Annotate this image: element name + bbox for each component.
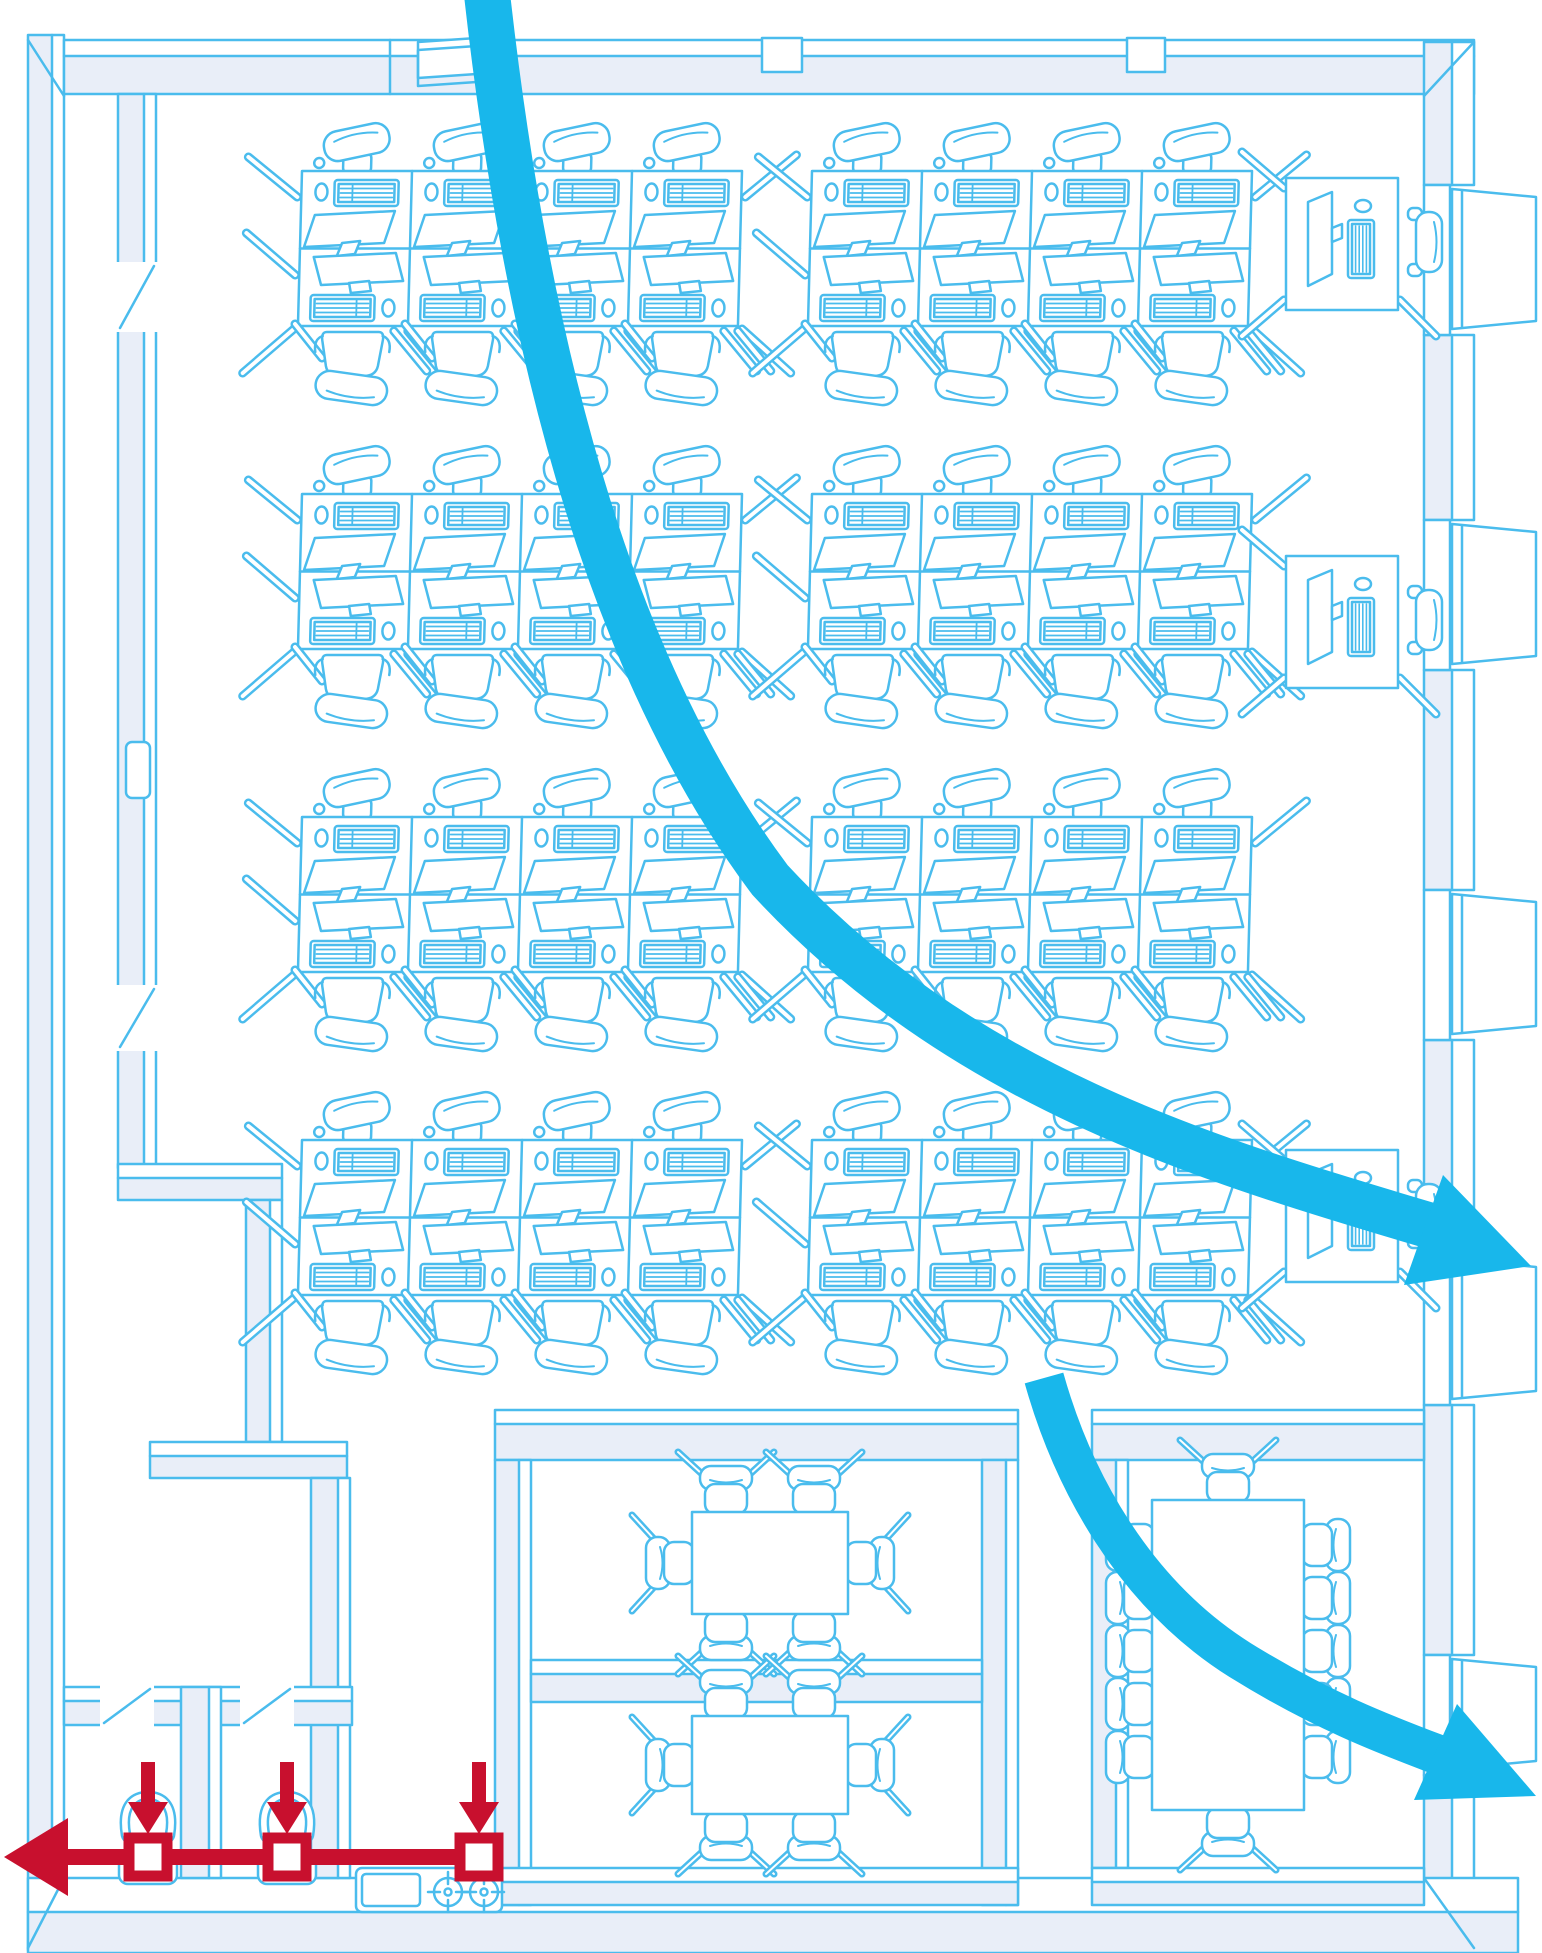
meeting-room-wall [495,1410,1018,1460]
chair-back [942,121,1012,164]
mouse [825,830,837,847]
mouse [1045,184,1057,201]
interior-walls [116,94,350,1878]
keyboard [420,618,485,644]
keyboard [640,295,705,321]
keyboard [844,826,909,852]
mouse [645,830,657,847]
office-chair [293,1293,391,1376]
down-arrow-icon [280,1762,294,1802]
mouse [535,830,547,847]
mouse [645,1153,657,1170]
keyboard [310,941,375,967]
mouse [892,623,904,640]
keyboard [1150,618,1215,644]
mouse [1002,623,1014,640]
mouse [712,946,724,963]
keyboard [444,503,509,529]
office-chair [644,1090,723,1142]
office-chair [424,444,503,496]
office-chair [1044,121,1123,173]
mouse [825,507,837,524]
keyboard [664,1149,729,1175]
mouse [382,1269,394,1286]
conference-room-wall [1092,1868,1424,1905]
chair-back [1162,444,1232,487]
chair-seat [933,1338,1009,1376]
office-chair [293,970,391,1053]
chair-back [1416,212,1442,272]
chair-seat [643,1015,719,1053]
keyboard [1174,180,1239,206]
chair-back [652,444,722,487]
office-chair [1154,767,1233,819]
chair-seat [643,369,719,407]
office-chair [644,444,723,496]
mouse [425,184,437,201]
mouse [892,946,904,963]
chair-back [832,1090,902,1133]
mouse [1222,946,1234,963]
keyboard [334,503,399,529]
chair-back [322,121,392,164]
keyboard [954,503,1019,529]
chair-seat [1043,1338,1119,1376]
mouse [935,1153,947,1170]
chair-seat [313,369,389,407]
mouse [712,1269,724,1286]
mouse [1155,507,1167,524]
keyboard [820,618,885,644]
mouse [602,1269,614,1286]
chair-back [432,1090,502,1133]
keyboard [444,1149,509,1175]
chair-seat [423,1338,499,1376]
keyboard [554,180,619,206]
office-chair [314,444,393,496]
keyboard [640,1264,705,1290]
keyboard [554,1149,619,1175]
chair-seat [933,369,1009,407]
partition-wall [118,1164,282,1200]
chair-seat [1153,369,1229,407]
chair-seat [823,1338,899,1376]
keyboard [1348,598,1374,656]
chair-back [942,767,1012,810]
keyboard [444,826,509,852]
keyboard [1150,295,1215,321]
chair-seat [823,692,899,730]
chair-seat [313,692,389,730]
chair-seat [643,1338,719,1376]
office-chair [934,1090,1013,1142]
office-chair [1408,586,1442,654]
keyboard [1040,295,1105,321]
meeting-chair [1302,1519,1350,1571]
meeting-chair [1302,1572,1350,1624]
mouse [825,1153,837,1170]
partition-wall [311,1478,350,1878]
partition-wall [150,1442,347,1478]
window-desk [1242,530,1442,714]
keyboard [930,295,995,321]
keyboard [1150,941,1215,967]
chair-back [1416,590,1442,650]
chair-back [1052,767,1122,810]
office-chair [314,121,393,173]
meeting-chair [1106,1678,1154,1730]
office-chair [803,647,901,730]
keyboard [554,826,619,852]
mouse [492,1269,504,1286]
keyboard [334,1149,399,1175]
keyboard [334,180,399,206]
meeting-room-wall [531,1660,982,1702]
mouse [1045,507,1057,524]
keyboard [1348,220,1374,278]
stall-door-opening [100,1685,154,1727]
keyboard [530,618,595,644]
meeting-chair [1302,1625,1350,1677]
office-chair [824,1090,903,1142]
chair-back [542,1090,612,1133]
office-chair [803,1293,901,1376]
chair-seat [533,692,609,730]
keyboard [640,941,705,967]
mouse [1222,300,1234,317]
desk-cluster [242,1090,797,1376]
meeting-chair [678,1452,774,1514]
keyboard [420,1264,485,1290]
office-chair [1408,208,1442,276]
chair-seat [1043,692,1119,730]
chair-seat [423,1015,499,1053]
mouse [1355,578,1371,590]
chair-back [322,767,392,810]
mouse [1112,946,1124,963]
meeting-chair [846,1515,908,1611]
meeting-chair [766,1812,862,1874]
keyboard [1064,1149,1129,1175]
chair-seat [423,369,499,407]
window-desk [1242,152,1442,336]
office-chair [314,1090,393,1142]
mouse [602,300,614,317]
mouse [825,184,837,201]
keyboard [1150,1264,1215,1290]
chair-back [652,121,722,164]
window [1424,890,1536,1040]
chair-seat [533,1338,609,1376]
office-chair [934,121,1013,173]
mouse [712,623,724,640]
chair-seat [1043,369,1119,407]
meeting-chair [632,1515,694,1611]
supply-node [459,1762,499,1876]
desk-cluster [752,1090,1307,1376]
keyboard [310,1264,375,1290]
chair-back [542,767,612,810]
mouse [382,623,394,640]
keyboard [530,1264,595,1290]
meeting-table [692,1512,848,1614]
chair-back [1052,121,1122,164]
office-chair [424,767,503,819]
mouse [1155,830,1167,847]
chair-back [832,444,902,487]
meeting-room-wall [982,1460,1018,1905]
keyboard [1064,826,1129,852]
keyboard [844,180,909,206]
chair-seat [423,692,499,730]
keyboard [664,180,729,206]
chair-seat [823,1015,899,1053]
mouse [315,507,327,524]
meeting-chair [846,1717,908,1813]
chair-seat [313,1015,389,1053]
keyboard [1174,503,1239,529]
floor-plan-canvas [0,0,1542,1953]
chair-back [832,121,902,164]
mouse [492,946,504,963]
keyboard [310,295,375,321]
chair-back [432,444,502,487]
office-chair [824,767,903,819]
chair-seat [933,692,1009,730]
office-chair [1154,121,1233,173]
meeting-chair [1180,1808,1276,1870]
keyboard [954,180,1019,206]
meeting-chair [1106,1731,1154,1783]
desk-cluster [752,444,1307,730]
chair-seat [533,1015,609,1053]
chair-seat [1153,1338,1229,1376]
mouse [535,507,547,524]
chair-back [542,121,612,164]
mouse [1112,300,1124,317]
keyboard [420,941,485,967]
mouse [315,830,327,847]
desk-cluster [242,444,797,730]
chair-seat [313,1338,389,1376]
mouse [1002,946,1014,963]
office-chair [534,1090,613,1142]
mouse [645,184,657,201]
meeting-chair [678,1812,774,1874]
mouse [1222,623,1234,640]
chair-back [1052,444,1122,487]
meeting-room-wall [495,1868,1018,1905]
mouse [382,946,394,963]
keyboard [930,1264,995,1290]
chair-back [1162,121,1232,164]
chair-seat [1153,692,1229,730]
office-chair [534,767,613,819]
keyboard [1174,826,1239,852]
keyboard [844,1149,909,1175]
keyboard [954,826,1019,852]
office-chair [824,121,903,173]
mouse [535,1153,547,1170]
keyboard [664,503,729,529]
chair-seat [1043,1015,1119,1053]
meeting-chair [766,1452,862,1514]
mouse [892,300,904,317]
desk-cluster [752,121,1307,407]
office-chair [644,121,723,173]
keyboard [1040,941,1105,967]
chair-back [322,1090,392,1133]
meeting-chair [1302,1731,1350,1783]
keyboard [930,941,995,967]
keyboard [530,941,595,967]
office-chair [1044,444,1123,496]
door-opening [116,985,158,1051]
keyboard [1064,180,1129,206]
office-chair [803,324,901,407]
chair-seat [823,369,899,407]
mouse [1222,1269,1234,1286]
meeting-chair [632,1717,694,1813]
meeting-chair [1106,1625,1154,1677]
mouse [645,507,657,524]
chair-back [322,444,392,487]
mouse [602,946,614,963]
mouse [935,830,947,847]
office-chair [314,767,393,819]
down-arrow-icon [141,1762,155,1802]
mouse [425,830,437,847]
office-chair [534,121,613,173]
mouse [1112,623,1124,640]
door-opening [116,262,158,332]
keyboard [1040,618,1105,644]
office-chair [293,324,391,407]
keyboard [334,826,399,852]
mouse [1112,1269,1124,1286]
chair-back [432,767,502,810]
desk-cluster [752,767,1307,1053]
mouse [492,300,504,317]
meeting-table [692,1716,848,1814]
mouse [935,507,947,524]
office-chair [424,1090,503,1142]
mouse [315,184,327,201]
mouse [1045,1153,1057,1170]
mouse [425,507,437,524]
keyboard [954,1149,1019,1175]
stall-door-opening [240,1685,294,1727]
keyboard [844,503,909,529]
office-chair [1154,444,1233,496]
chair-back [942,444,1012,487]
mouse [1155,184,1167,201]
office-chair [934,444,1013,496]
mouse [935,184,947,201]
keyboard [1064,503,1129,529]
chair-seat [1153,1015,1229,1053]
mouse [1002,1269,1014,1286]
office-chair [293,647,391,730]
keyboard [820,295,885,321]
mouse [425,1153,437,1170]
chair-back [942,1090,1012,1133]
office-chair [1044,767,1123,819]
mouse [1002,300,1014,317]
mouse [492,623,504,640]
chair-back [1162,767,1232,810]
mouse [315,1153,327,1170]
mouse [1045,830,1057,847]
keyboard [930,618,995,644]
office-chair [824,444,903,496]
door-plate [126,742,150,798]
keyboard [820,1264,885,1290]
keyboard [1040,1264,1105,1290]
down-arrow-icon [472,1762,486,1802]
mouse [892,1269,904,1286]
meeting-room [632,1452,908,1674]
chair-back [652,1090,722,1133]
keyboard [420,295,485,321]
office-chair [934,767,1013,819]
mouse [712,300,724,317]
chair-back [832,767,902,810]
mouse [382,300,394,317]
mouse [1355,200,1371,212]
office-floor-plan [0,0,1542,1953]
keyboard [310,618,375,644]
